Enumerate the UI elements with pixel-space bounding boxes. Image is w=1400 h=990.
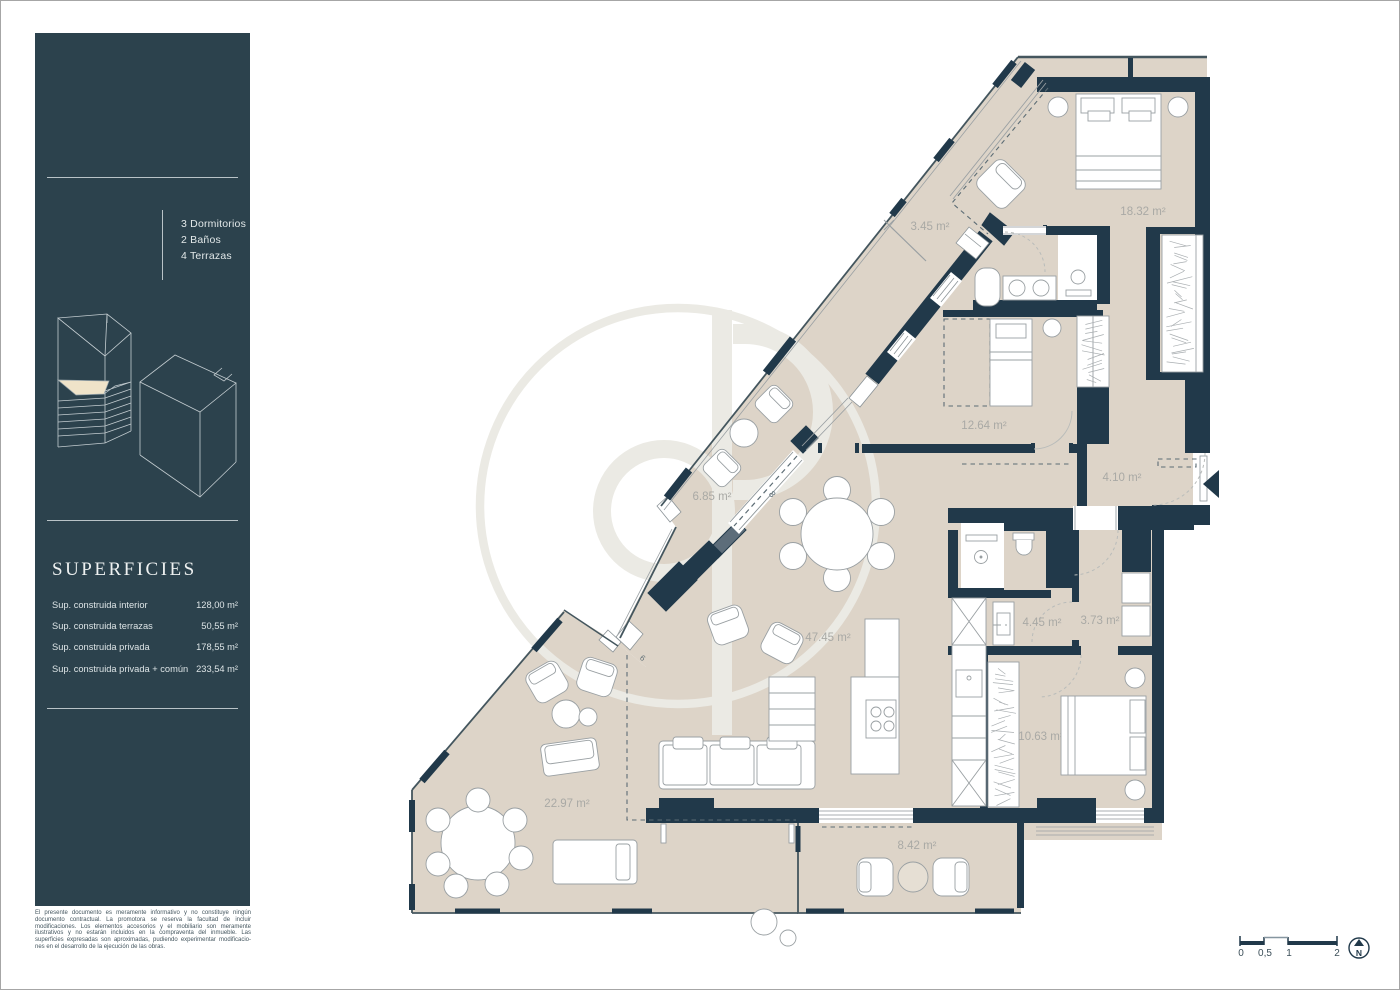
svg-text:47.45 m²: 47.45 m² bbox=[805, 632, 851, 644]
svg-text:N: N bbox=[1356, 948, 1362, 958]
svg-text:12.64 m²: 12.64 m² bbox=[961, 420, 1007, 432]
svg-text:3.45 m²: 3.45 m² bbox=[911, 221, 950, 233]
svg-text:4.10 m²: 4.10 m² bbox=[1103, 472, 1142, 484]
svg-text:2: 2 bbox=[1334, 948, 1340, 959]
svg-text:1: 1 bbox=[1286, 948, 1292, 959]
svg-text:3.73 m²: 3.73 m² bbox=[1081, 615, 1120, 627]
svg-text:6.85 m²: 6.85 m² bbox=[693, 491, 732, 503]
svg-text:0: 0 bbox=[1238, 948, 1244, 959]
svg-text:18.32 m²: 18.32 m² bbox=[1120, 206, 1166, 218]
svg-text:22.97 m²: 22.97 m² bbox=[544, 798, 590, 810]
svg-text:8.42 m²: 8.42 m² bbox=[898, 840, 937, 852]
svg-text:4.45 m²: 4.45 m² bbox=[1023, 617, 1062, 629]
svg-text:0,5: 0,5 bbox=[1258, 948, 1272, 959]
svg-text:10.63 m²: 10.63 m² bbox=[1018, 731, 1064, 743]
